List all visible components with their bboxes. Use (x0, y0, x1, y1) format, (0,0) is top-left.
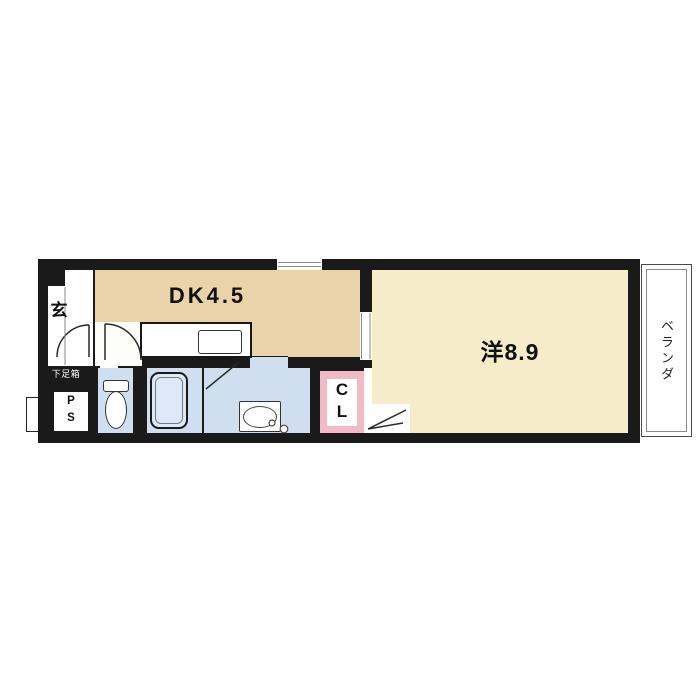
western-room-door-recess (372, 404, 410, 433)
washroom-upper (250, 356, 288, 368)
veranda-inner-rail: ベランダ (646, 269, 687, 432)
washbasin-bowl (243, 406, 277, 428)
doorway-dk-to-western (360, 312, 372, 360)
dk-window (277, 259, 322, 270)
toilet-doorway (100, 357, 118, 368)
pipe-space-letter-s: S (54, 410, 88, 427)
toilet-bowl (105, 391, 127, 429)
closet-letter-l: L (327, 402, 357, 422)
kitchen-sink (198, 330, 242, 354)
veranda-label: ベランダ (657, 319, 676, 383)
floorplan-canvas: ベランダ (0, 0, 700, 700)
closet-letter-c: C (327, 380, 357, 400)
pipe-space-letter-p: P (54, 393, 88, 410)
pipe-space-label: P S (54, 393, 88, 426)
dining-kitchen-label: DK4.5 (140, 283, 275, 309)
closet-side-passage (364, 368, 372, 433)
bathtub-inner-rim (155, 377, 183, 424)
genkan-label: 玄 (46, 296, 72, 321)
veranda: ベランダ (641, 264, 692, 437)
western-room-label: 洋8.9 (440, 333, 580, 367)
shoe-box-label: 下足箱 (44, 367, 88, 380)
